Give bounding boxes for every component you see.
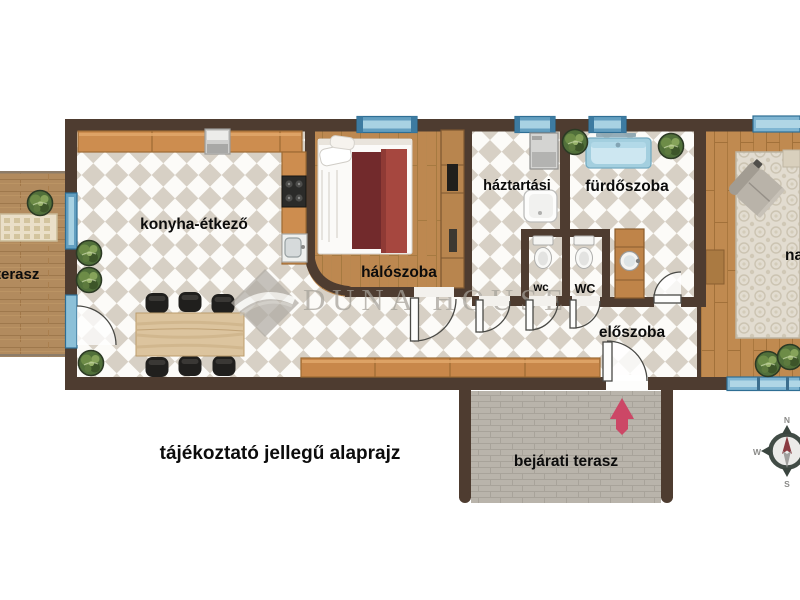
svg-text:S: S	[784, 479, 790, 489]
svg-text:W: W	[753, 447, 762, 457]
svg-text:konyha-étkező: konyha-étkező	[140, 216, 248, 233]
svg-text:tájékoztató jellegű alaprajz: tájékoztató jellegű alaprajz	[160, 443, 401, 464]
svg-text:hálószoba: hálószoba	[361, 264, 437, 281]
svg-text:előszoba: előszoba	[599, 324, 666, 341]
svg-text:háztartási: háztartási	[483, 178, 551, 194]
svg-text:N: N	[784, 415, 790, 425]
svg-text:bejárati terasz: bejárati terasz	[514, 453, 618, 470]
svg-text:terasz: terasz	[0, 266, 39, 283]
svg-text:WC: WC	[575, 282, 596, 296]
svg-text:fürdőszoba: fürdőszoba	[585, 178, 669, 195]
svg-text:nappali: nappali	[785, 247, 800, 264]
svg-text:wc: wc	[532, 282, 549, 294]
